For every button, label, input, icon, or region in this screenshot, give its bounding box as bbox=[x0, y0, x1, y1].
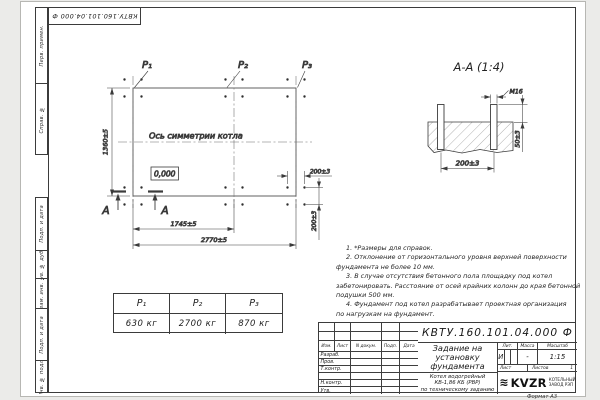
col-izm: Изм. bbox=[319, 341, 335, 351]
title-block-signatures: Изм. Лист N докум. Подп. Дата Разраб. Пр… bbox=[319, 323, 418, 394]
margin-strip-top: Перв. примен. Справ. № bbox=[35, 7, 48, 155]
margin-cell-sprav-no: Справ. № bbox=[36, 84, 47, 156]
lit-value: И bbox=[498, 350, 505, 364]
lit-label: Лит. bbox=[498, 343, 518, 349]
logo-caption-line: ЗАВОД РЭП bbox=[549, 383, 576, 388]
loads-header-p2: Р₂ bbox=[170, 294, 226, 313]
col-podp: Подп. bbox=[382, 341, 400, 351]
info-value-row: И - 1:15 bbox=[498, 350, 577, 365]
title-block-product: Котел водогрейный КВ-1,86 КБ (РВР) по те… bbox=[418, 373, 498, 394]
note-line: 1. *Размеры для справок. bbox=[336, 244, 572, 253]
inv-dubl-label: Инв. № дубл. bbox=[39, 251, 45, 279]
change-row bbox=[319, 332, 418, 341]
signature-header-row: Изм. Лист N докум. Подп. Дата bbox=[319, 341, 418, 352]
title-block-title: Задание на установку фундамента bbox=[418, 343, 498, 373]
sheets-label: Листов bbox=[532, 366, 548, 371]
company-logo: ≋ KVZR КОТЕЛЬНЫЙ ЗАВОД РЭП bbox=[498, 372, 577, 394]
col-ndokum: N докум. bbox=[351, 341, 382, 351]
note-line: по нагрузкам на фундамент. bbox=[336, 310, 572, 319]
title-block-doc-number: КВТУ.160.101.04.000 Ф bbox=[418, 323, 577, 343]
row-razrab: Разраб. bbox=[319, 352, 351, 358]
title-block: Изм. Лист N докум. Подп. Дата Разраб. Пр… bbox=[318, 322, 576, 393]
loads-header-p1: Р₁ bbox=[114, 294, 170, 313]
info-header-row: Лит. Масса Масштаб bbox=[498, 343, 577, 350]
col-data: Дата bbox=[400, 341, 418, 351]
technical-notes: 1. *Размеры для справок. 2. Отклонение о… bbox=[336, 244, 572, 319]
note-line: забетонировать. Расстояние от осей крайн… bbox=[336, 282, 572, 291]
signature-row: Утв. bbox=[319, 387, 418, 394]
title-line: фундамента bbox=[430, 362, 484, 371]
inv-podl-label: Инв. № подл. bbox=[39, 361, 45, 394]
margin-cell-inv-dubl: Инв. № дубл. bbox=[36, 251, 47, 279]
row-prov: Пров. bbox=[319, 359, 351, 365]
margin-cell-vzam-inv: Взам. инв. № bbox=[36, 279, 47, 309]
loads-table-value-row: 630 кг 2700 кг 870 кг bbox=[114, 314, 282, 334]
col-list: Лист bbox=[335, 341, 351, 351]
top-stamp: КВТУ.160.101.04.000 Ф bbox=[48, 7, 141, 25]
note-line: 4. Фундамент под котел разрабатывает про… bbox=[336, 300, 572, 309]
loads-table-header-row: Р₁ Р₂ Р₃ bbox=[114, 294, 282, 314]
scale-label: Масштаб bbox=[538, 343, 577, 349]
sheet-row: Лист Листов 1 bbox=[498, 365, 577, 372]
vzam-inv-label: Взам. инв. № bbox=[39, 279, 45, 309]
loads-value-p2: 2700 кг bbox=[170, 314, 226, 334]
loads-header-p3: Р₃ bbox=[226, 294, 282, 313]
signature-row: Пров. bbox=[319, 359, 418, 366]
row-nkontr: Н.контр. bbox=[319, 380, 351, 386]
margin-cell-podp-data-1: Подп. и дата bbox=[36, 198, 47, 251]
podp-data-bottom-label: Подп. и дата bbox=[39, 316, 45, 354]
mass-value: - bbox=[518, 350, 538, 364]
margin-cell-podp-data-2: Подп. и дата bbox=[36, 309, 47, 361]
podp-data-top-label: Подп. и дата bbox=[39, 205, 45, 243]
note-line: подушки 500 мм. bbox=[336, 291, 572, 300]
row-empty bbox=[319, 373, 351, 379]
kvzr-logo-text: KVZR bbox=[511, 376, 547, 390]
loads-table: Р₁ Р₂ Р₃ 630 кг 2700 кг 870 кг bbox=[113, 293, 283, 333]
row-utv: Утв. bbox=[319, 387, 351, 394]
perv-primen-label: Перв. примен. bbox=[39, 25, 45, 66]
note-line: 2. Отклонение от горизонтального уровня … bbox=[336, 253, 572, 262]
loads-value-p3: 870 кг bbox=[226, 314, 282, 334]
note-line: фундамента не более 10 мм. bbox=[336, 263, 572, 272]
note-line: 3. В случае отсутствия бетонного пола пл… bbox=[336, 272, 572, 281]
change-row bbox=[319, 323, 418, 332]
kvzr-coil-icon: ≋ bbox=[499, 378, 508, 388]
margin-strip-bottom: Подп. и дата Инв. № дубл. Взам. инв. № П… bbox=[35, 197, 48, 393]
signature-row bbox=[319, 373, 418, 380]
top-stamp-number: КВТУ.160.101.04.000 Ф bbox=[52, 12, 138, 20]
sheets-value: 1 bbox=[570, 366, 573, 371]
sprav-no-label: Справ. № bbox=[39, 106, 45, 134]
margin-cell-perv-primen: Перв. примен. bbox=[36, 8, 47, 84]
product-line: по техническому заданию bbox=[421, 387, 495, 393]
loads-value-p1: 630 кг bbox=[114, 314, 170, 334]
title-block-info: Лит. Масса Масштаб И - 1:15 Лист Листов … bbox=[498, 343, 577, 394]
sheet-label: Лист bbox=[498, 365, 528, 371]
row-tkontr: Т.контр. bbox=[319, 366, 351, 372]
signature-row: Т.контр. bbox=[319, 366, 418, 373]
signature-row: Разраб. bbox=[319, 352, 418, 359]
mass-label: Масса bbox=[518, 343, 538, 349]
margin-cell-inv-podl: Инв. № подл. bbox=[36, 361, 47, 394]
signature-row: Н.контр. bbox=[319, 380, 418, 387]
format-label: Формат А3 bbox=[527, 394, 557, 400]
scale-value: 1:15 bbox=[538, 350, 577, 364]
